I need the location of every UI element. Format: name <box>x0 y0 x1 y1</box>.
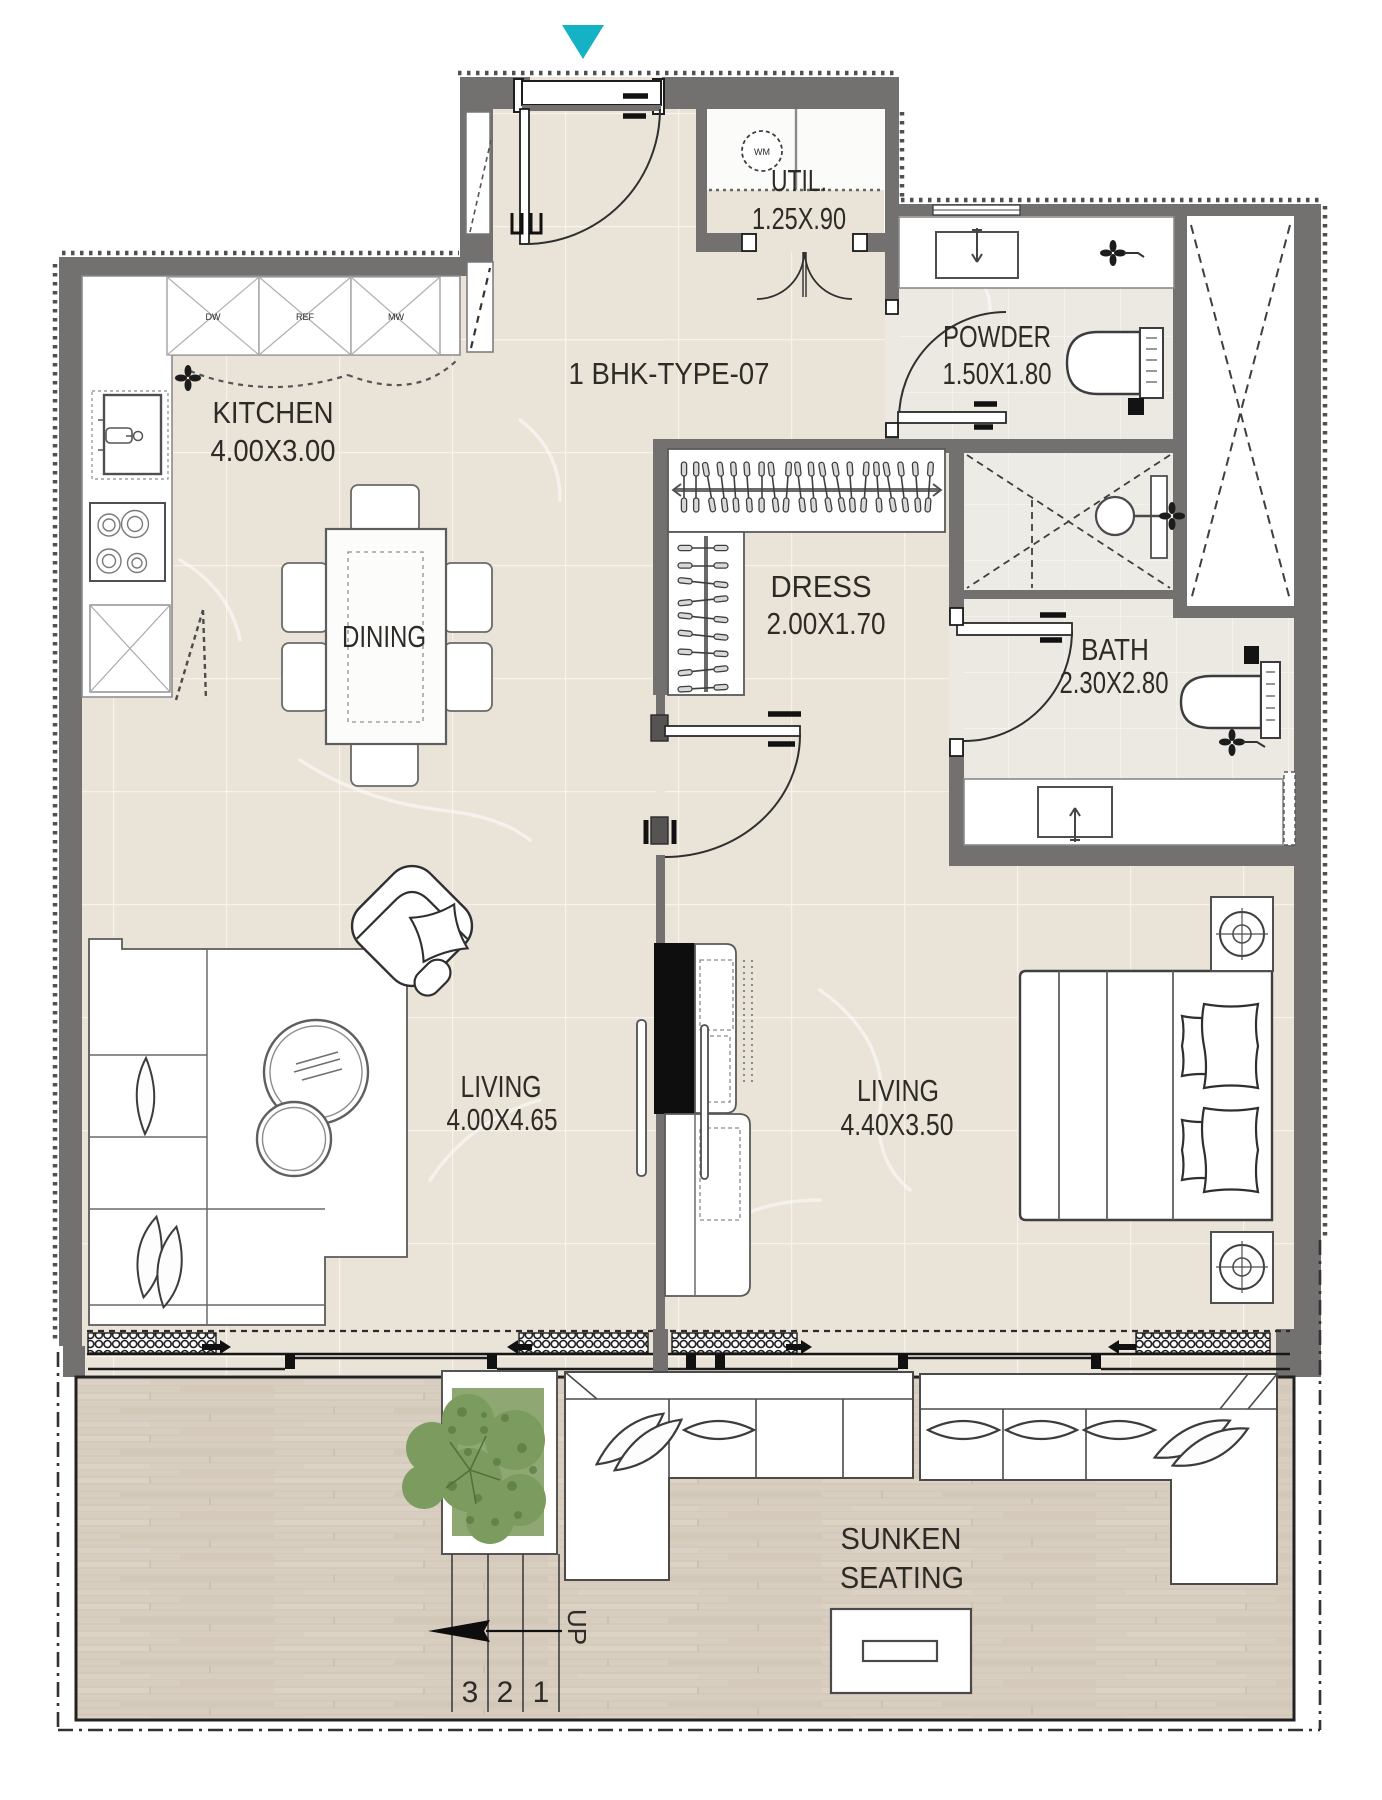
svg-text:1.50X1.80: 1.50X1.80 <box>943 356 1052 391</box>
svg-text:POWDER: POWDER <box>943 319 1051 354</box>
svg-text:DW: DW <box>206 312 221 322</box>
svg-text:KITCHEN: KITCHEN <box>213 395 334 430</box>
svg-text:1: 1 <box>533 1676 550 1709</box>
svg-text:LIVING: LIVING <box>461 1069 542 1104</box>
svg-text:1 BHK-TYPE-07: 1 BHK-TYPE-07 <box>569 356 770 391</box>
svg-text:4.00X4.65: 4.00X4.65 <box>447 1102 558 1137</box>
svg-text:SUNKEN: SUNKEN <box>841 1521 962 1556</box>
svg-text:MW: MW <box>388 312 404 322</box>
svg-text:WM: WM <box>754 147 770 157</box>
svg-text:1.25X.90: 1.25X.90 <box>752 201 846 236</box>
svg-text:3: 3 <box>462 1676 479 1709</box>
svg-text:2.00X1.70: 2.00X1.70 <box>767 606 886 641</box>
svg-text:2.30X2.80: 2.30X2.80 <box>1060 665 1169 700</box>
svg-text:BATH: BATH <box>1081 632 1149 667</box>
svg-text:UP: UP <box>562 1609 592 1645</box>
svg-text:LIVING: LIVING <box>857 1073 939 1108</box>
svg-text:4.40X3.50: 4.40X3.50 <box>841 1107 954 1142</box>
svg-text:DRESS: DRESS <box>771 569 872 604</box>
svg-text:REF: REF <box>296 312 315 322</box>
svg-text:4.00X3.00: 4.00X3.00 <box>211 433 336 468</box>
svg-text:DINING: DINING <box>342 619 426 654</box>
svg-text:2: 2 <box>497 1676 514 1709</box>
svg-text:UTIL.: UTIL. <box>771 163 827 198</box>
svg-text:SEATING: SEATING <box>840 1560 964 1595</box>
